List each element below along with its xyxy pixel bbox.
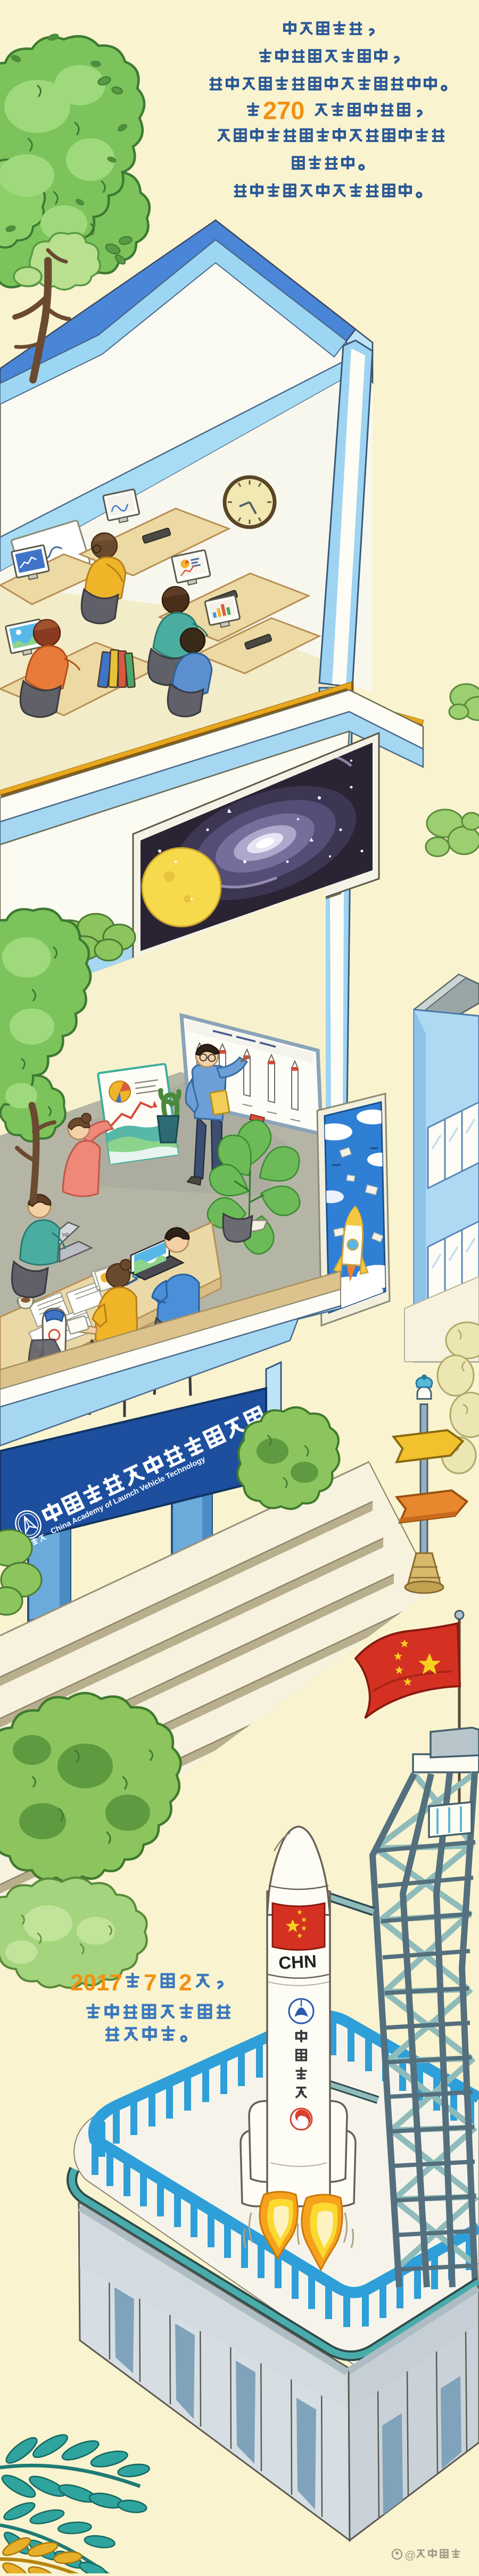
- svg-text:@: @: [404, 2549, 416, 2562]
- svg-text:CHN: CHN: [278, 1951, 317, 1973]
- svg-text:2: 2: [179, 1970, 192, 1996]
- svg-text:2017: 2017: [70, 1970, 122, 1996]
- svg-text:270: 270: [263, 96, 304, 124]
- svg-text:7: 7: [144, 1970, 156, 1996]
